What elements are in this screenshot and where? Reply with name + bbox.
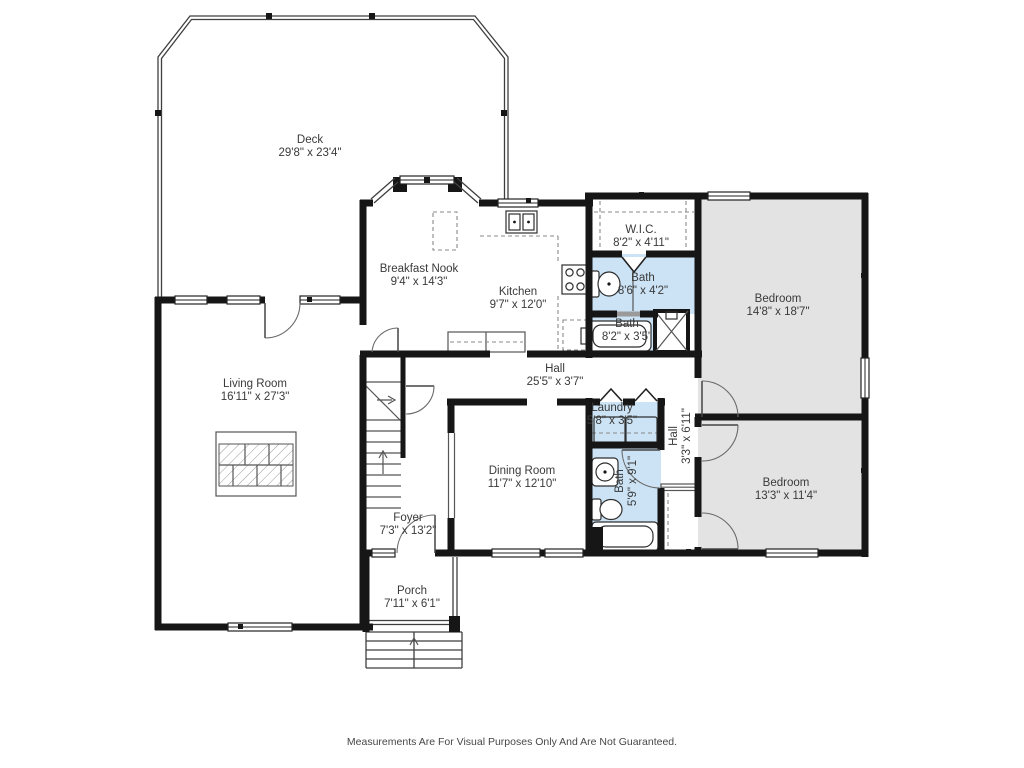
room-name: Hall	[668, 408, 681, 464]
room-label-deck: Deck 29'8" x 23'4"	[278, 134, 341, 160]
shower-icon	[655, 311, 688, 352]
pocket-door	[617, 312, 640, 317]
room-dims: 11'7" x 12'10"	[488, 478, 557, 491]
room-dims: 9'4" x 14'3"	[380, 276, 459, 289]
room-name: Porch	[384, 585, 440, 598]
fireplace-icon	[216, 432, 296, 496]
room-label-bath-middle: Bath 8'2" x 3'5"	[602, 318, 652, 344]
room-name: Dining Room	[488, 465, 557, 478]
room-name: Breakfast Nook	[380, 263, 459, 276]
room-dims: 5'9" x 9'1"	[627, 456, 640, 506]
room-name: Living Room	[221, 378, 290, 391]
room-label-hall-side: Hall 3'3" x 6'11"	[668, 408, 694, 464]
room-dims: 16'11" x 27'3"	[221, 391, 290, 404]
floor-plan: Deck 29'8" x 23'4" Breakfast Nook 9'4" x…	[0, 0, 1024, 768]
stove-icon	[562, 265, 588, 294]
room-name: Laundry	[587, 402, 637, 415]
room-label-wic: W.I.C. 8'2" x 4'11"	[613, 224, 669, 250]
room-dims: 9'7" x 12'0"	[490, 299, 547, 312]
room-label-bath-upper: Bath 8'6" x 4'2"	[618, 272, 668, 298]
kitchen-sink-icon	[506, 211, 537, 233]
room-label-laundry: Laundry 5'8" x 3'5"	[587, 402, 637, 428]
room-name: Kitchen	[490, 286, 547, 299]
toilet-icon-upper-bath	[590, 271, 620, 297]
room-name: Bath	[614, 456, 627, 506]
room-name: Foyer	[380, 512, 437, 525]
room-label-kitchen: Kitchen 9'7" x 12'0"	[490, 286, 547, 312]
room-label-bath-lower: Bath 5'9" x 9'1"	[614, 456, 640, 506]
room-label-dining-room: Dining Room 11'7" x 12'10"	[488, 465, 557, 491]
kitchen-island	[448, 332, 525, 352]
room-dims: 5'8" x 3'5"	[587, 415, 637, 428]
stairs-icon	[366, 382, 401, 508]
room-dims: 8'2" x 3'5"	[602, 331, 652, 344]
room-name: Bedroom	[746, 293, 809, 306]
cased-opening	[449, 433, 455, 518]
room-name: Hall	[527, 363, 584, 376]
room-label-foyer: Foyer 7'3" x 13'2"	[380, 512, 437, 538]
room-dims: 8'6" x 4'2"	[618, 285, 668, 298]
room-dims: 25'5" x 3'7"	[527, 376, 584, 389]
room-dims: 3'3" x 6'11"	[681, 408, 694, 464]
room-label-living-room: Living Room 16'11" x 27'3"	[221, 378, 290, 404]
room-dims: 7'3" x 13'2"	[380, 525, 437, 538]
room-label-bedroom-primary: Bedroom 14'8" x 18'7"	[746, 293, 809, 319]
room-name: W.I.C.	[613, 224, 669, 237]
room-name: Deck	[278, 134, 341, 147]
disclaimer-text: Measurements Are For Visual Purposes Onl…	[0, 736, 1024, 748]
hall-closet	[661, 484, 698, 551]
room-dims: 14'8" x 18'7"	[746, 306, 809, 319]
room-label-bedroom-second: Bedroom 13'3" x 11'4"	[755, 477, 817, 503]
room-name: Bedroom	[755, 477, 817, 490]
room-dims: 8'2" x 4'11"	[613, 237, 669, 250]
room-label-hall-main: Hall 25'5" x 3'7"	[527, 363, 584, 389]
room-label-breakfast-nook: Breakfast Nook 9'4" x 14'3"	[380, 263, 459, 289]
room-dims: 7'11" x 6'1"	[384, 598, 440, 611]
room-label-porch: Porch 7'11" x 6'1"	[384, 585, 440, 611]
floor-plan-drawing	[0, 0, 1024, 768]
porch-steps-icon	[366, 557, 462, 668]
room-name: Bath	[602, 318, 652, 331]
room-dims: 29'8" x 23'4"	[278, 147, 341, 160]
room-name: Bath	[618, 272, 668, 285]
room-dims: 13'3" x 11'4"	[755, 490, 817, 503]
